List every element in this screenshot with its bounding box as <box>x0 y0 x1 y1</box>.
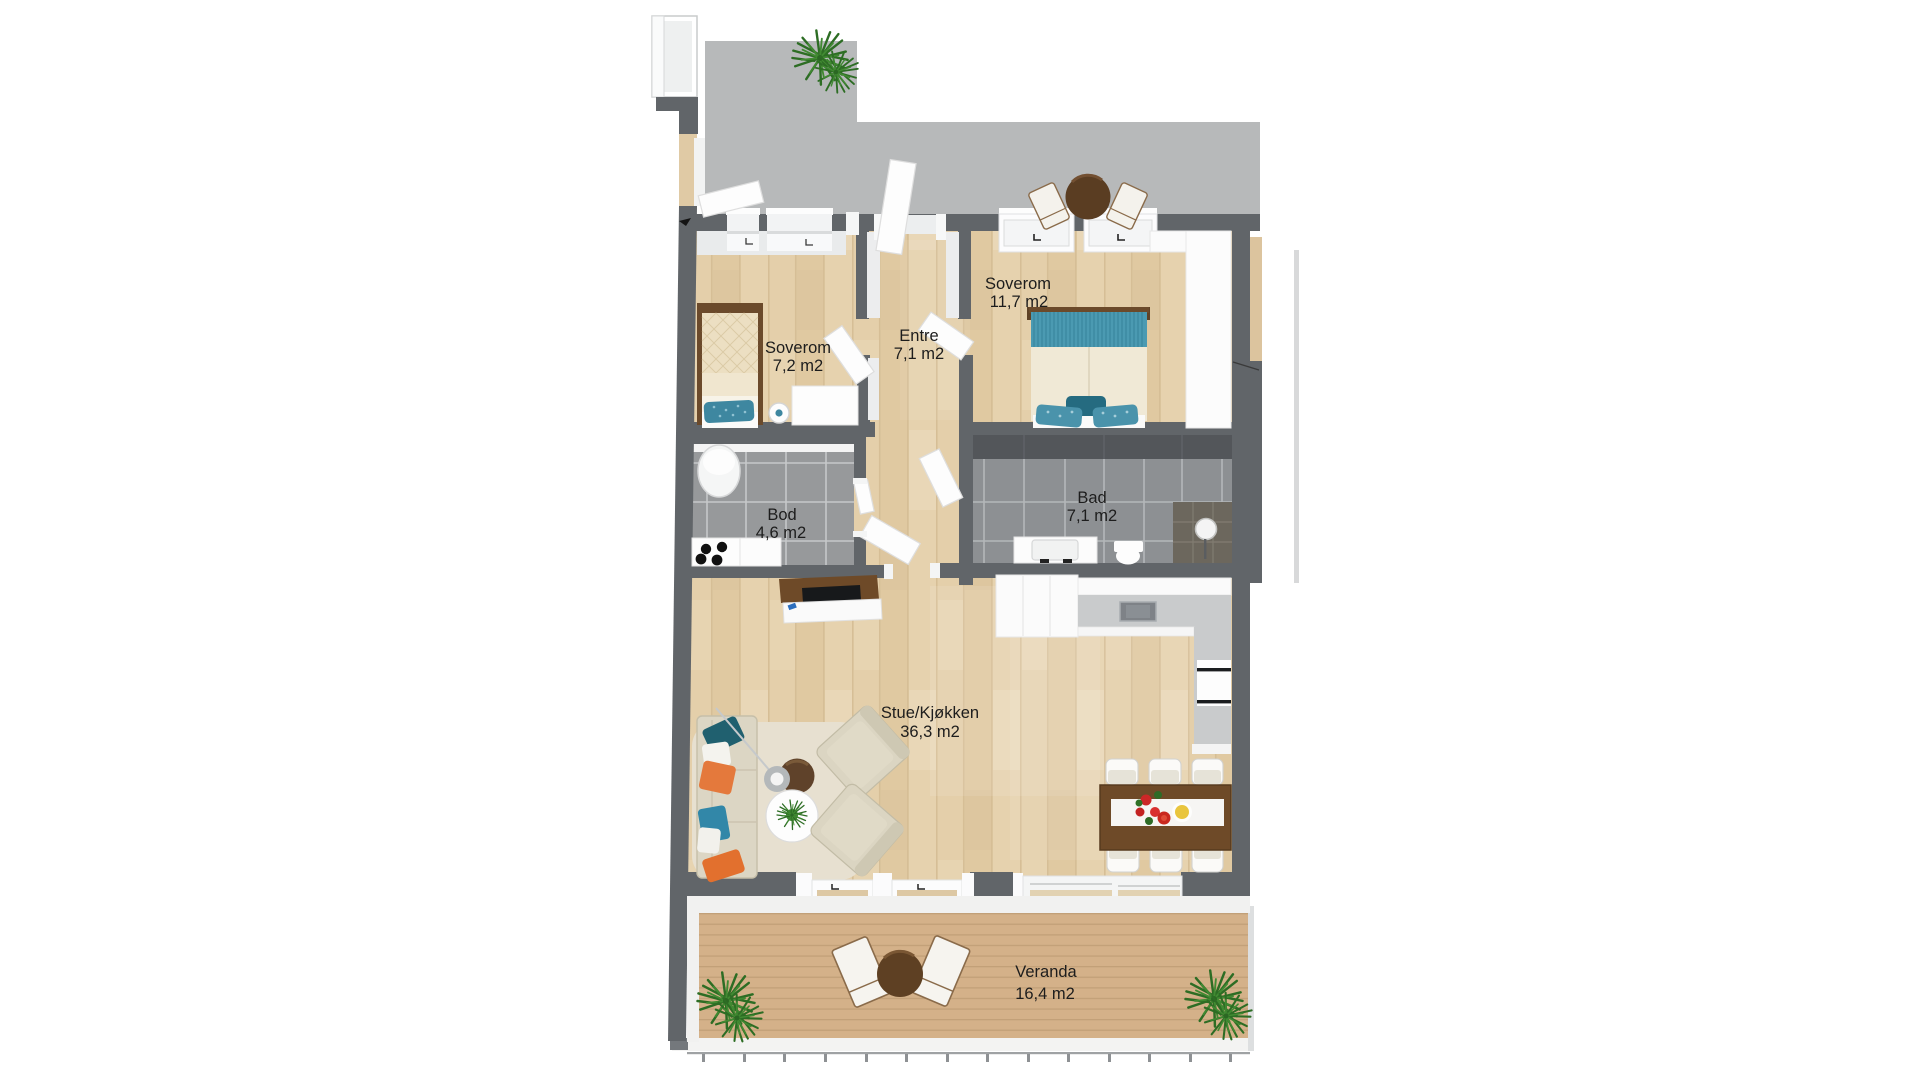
svg-text:7,2 m2: 7,2 m2 <box>773 357 823 375</box>
svg-text:Entre: Entre <box>899 327 938 345</box>
svg-text:4,6 m2: 4,6 m2 <box>756 524 806 542</box>
svg-text:7,1 m2: 7,1 m2 <box>1067 507 1117 525</box>
svg-text:Stue/Kjøkken: Stue/Kjøkken <box>881 704 979 722</box>
svg-text:Soverom: Soverom <box>985 275 1051 293</box>
svg-text:16,4 m2: 16,4 m2 <box>1015 985 1075 1003</box>
svg-text:Bod: Bod <box>767 506 796 524</box>
svg-text:Bad: Bad <box>1077 489 1106 507</box>
svg-text:11,7 m2: 11,7 m2 <box>990 293 1048 311</box>
svg-text:7,1 m2: 7,1 m2 <box>894 345 944 363</box>
svg-text:36,3 m2: 36,3 m2 <box>900 723 960 741</box>
svg-text:Soverom: Soverom <box>765 339 831 357</box>
svg-text:Veranda: Veranda <box>1015 963 1077 981</box>
